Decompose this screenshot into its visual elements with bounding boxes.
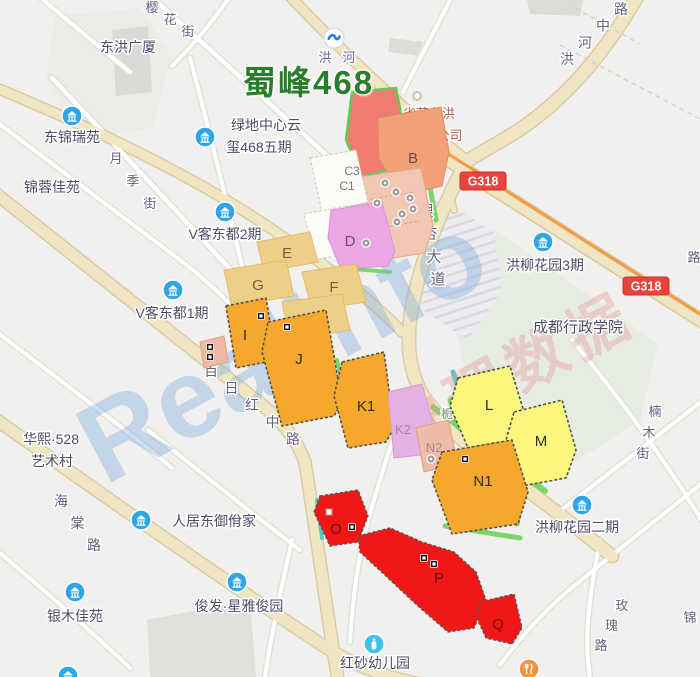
- parcel-label-M: M: [535, 433, 548, 450]
- roundabout-icon: [413, 92, 421, 100]
- parcel-label-E: E: [282, 245, 292, 262]
- street-label-char: 瑰: [605, 618, 618, 633]
- poi-icon-nursery[interactable]: [364, 634, 384, 654]
- g318-badge-text: G318: [631, 280, 662, 294]
- poi-label: 俊发·星雅俊园: [195, 598, 284, 614]
- facility-icon: [349, 524, 356, 531]
- street-label-char: 锦: [683, 610, 696, 625]
- poi-icon-building[interactable]: [62, 106, 82, 126]
- poi-label: 洪柳花园3期: [506, 257, 584, 273]
- street-label-char: 洪: [560, 51, 574, 67]
- place-label: 华熙·528: [23, 431, 79, 447]
- facility-icon: [431, 561, 438, 568]
- place-label: 艺术村: [31, 453, 73, 469]
- amenity-dot-icon: [392, 188, 400, 196]
- place-label: 东洪广厦: [100, 39, 156, 55]
- street-label-char: 花: [163, 12, 176, 27]
- parcel-label-P: P: [434, 570, 444, 587]
- street-label-char: 红: [245, 397, 259, 413]
- street-label-char: 路: [614, 1, 628, 17]
- poi-label: V客东都2期: [188, 226, 261, 242]
- map-root[interactable]: Realinfo锐理数据樱花街洪河中路银杏大道百日红中路海棠路月季街楠木街玫瑰路…: [0, 0, 700, 677]
- parcel-label-N1: N1: [473, 473, 492, 490]
- facility-icon: [207, 344, 214, 351]
- parcel-label-I: I: [243, 327, 247, 344]
- parcel-label-F: F: [329, 279, 338, 296]
- poi-label: 红砂幼儿园: [340, 655, 410, 671]
- street-label-char: 道: [430, 271, 445, 288]
- parcel-label-N2: N2: [426, 440, 443, 455]
- poi-icon-building[interactable]: [227, 572, 247, 592]
- parcel-label-O: O: [330, 521, 342, 538]
- poi-label: 东锦瑞苑: [44, 129, 100, 145]
- street-label-char: 中: [266, 414, 280, 430]
- amenity-dot-icon: [362, 239, 370, 247]
- street-label-char: 河: [578, 34, 592, 50]
- street-label-char: 季: [126, 174, 139, 189]
- poi-label: 玺468五期: [226, 139, 291, 155]
- poi-label: V客东都1期: [135, 305, 208, 321]
- facility-icon: [421, 555, 428, 562]
- amenity-dot-icon: [373, 199, 381, 207]
- street-label-char: 中: [596, 18, 610, 34]
- poi-icon-building[interactable]: [131, 510, 151, 530]
- amenity-dot-icon: [381, 179, 389, 187]
- street-label-char: 樱: [145, 0, 158, 15]
- facility-icon: [258, 313, 265, 320]
- street-label-char: 木: [642, 425, 655, 440]
- parcel-N1[interactable]: N1: [432, 440, 528, 534]
- poi-label: 银木佳苑: [47, 608, 103, 624]
- poi-label: 人居东御佾家: [172, 513, 256, 529]
- parcel-label-J: J: [295, 351, 303, 368]
- street-label-char: 海: [54, 493, 68, 509]
- poi-label: 洪柳花园二期: [535, 519, 619, 535]
- facility-icon: [462, 456, 469, 463]
- street-label-char: 楠: [648, 404, 661, 419]
- parcel-label-B: B: [408, 150, 418, 167]
- street-label: 锦: [683, 610, 696, 625]
- street-label-char: 街: [143, 196, 156, 211]
- building-block-2: [527, 0, 583, 16]
- street-label-char: 玫: [615, 598, 628, 613]
- parcel-label-K1: K1: [357, 398, 375, 415]
- poi-icon-building[interactable]: [195, 127, 215, 147]
- street-label-char: 路: [594, 638, 607, 653]
- poi-icon-water[interactable]: [324, 28, 344, 48]
- place-label: 锦蓉佳苑: [24, 179, 80, 195]
- poi-icon-restaurant[interactable]: [519, 659, 539, 677]
- poi-icon-building[interactable]: [65, 582, 85, 602]
- g318-badge-text: G318: [468, 175, 499, 189]
- amenity-dot-icon: [427, 455, 435, 463]
- facility-icon: [207, 354, 214, 361]
- street-label: 路: [687, 250, 700, 265]
- parcel-label-K2: K2: [395, 422, 411, 437]
- parcel-label-C3-white: C3: [344, 164, 360, 178]
- parcel-label-G: G: [252, 277, 264, 294]
- parcel-label-Q: Q: [492, 616, 504, 633]
- marker-square-icon: [326, 509, 332, 515]
- street-label-char: 月: [109, 151, 122, 166]
- street-label-char: 路: [87, 537, 101, 553]
- g318-badge: G318: [623, 277, 669, 295]
- street-label-char: 日: [225, 380, 239, 396]
- amenity-dot-icon: [398, 210, 406, 218]
- poi-icon-building[interactable]: [163, 280, 183, 300]
- poi-icon-building[interactable]: [533, 232, 553, 252]
- parcel-label-C1-white: C1: [339, 179, 355, 193]
- g318-badge: G318: [460, 172, 506, 190]
- parcel-label-L: L: [485, 397, 493, 414]
- street-label-char: 路: [687, 250, 700, 265]
- parcel-label-D: D: [345, 233, 356, 250]
- amenity-dot-icon: [409, 205, 417, 213]
- parcel-D[interactable]: D: [328, 202, 395, 269]
- street-label-char: 街: [181, 24, 194, 39]
- poi-label: 绿地中心云: [231, 117, 301, 133]
- parcel-side-parcel[interactable]: [200, 336, 228, 368]
- project-title: 蜀峰468: [243, 56, 374, 104]
- street-label-char: 大: [426, 248, 441, 265]
- facility-icon: [284, 324, 291, 331]
- amenity-dot-icon: [393, 218, 401, 226]
- street-label-char: 棠: [71, 515, 85, 531]
- street-label-char: 路: [286, 431, 300, 447]
- amenity-dot-icon: [406, 194, 414, 202]
- place-label: 成都行政学院: [533, 318, 623, 336]
- poi-icon-building[interactable]: [572, 495, 592, 515]
- poi-icon-building[interactable]: [215, 202, 235, 222]
- street-label-char: 街: [636, 446, 649, 461]
